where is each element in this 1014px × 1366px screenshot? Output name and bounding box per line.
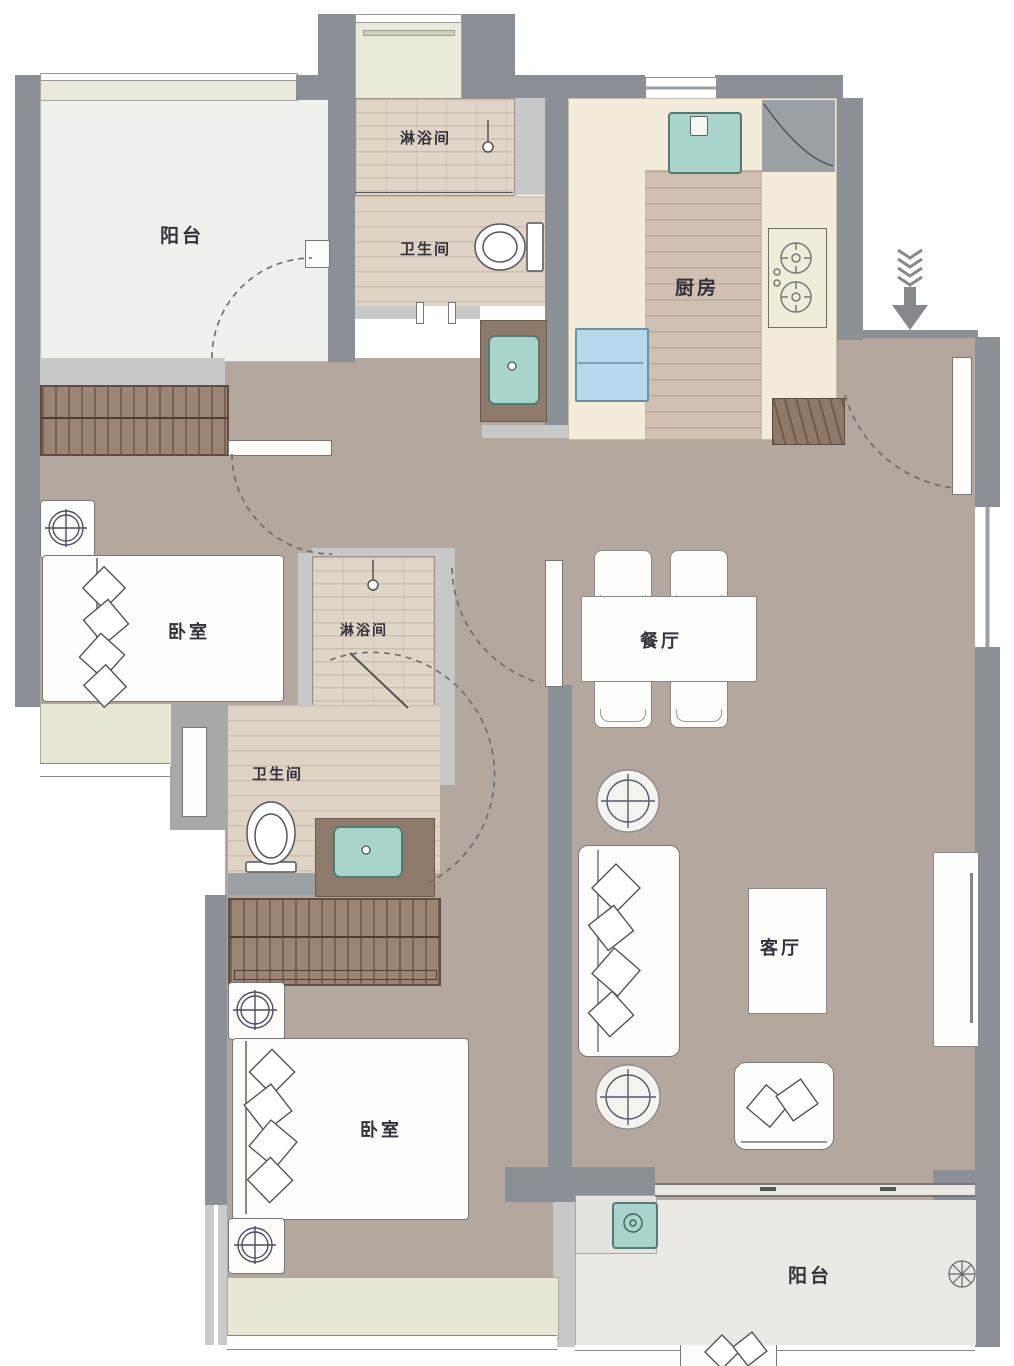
wall-bath-mid-bottom (228, 870, 315, 895)
wall-entry-top (835, 330, 978, 338)
duct-shower-north (513, 98, 545, 195)
washing-machine (612, 1202, 658, 1249)
floor-plan: 阳台 淋浴间 卫生间 厨房 卧室 淋浴间 卫生间 餐厅 客厅 卧室 阳台 (0, 0, 1014, 1366)
window-bedroom-south-left (205, 1205, 227, 1345)
tv-panel (970, 873, 973, 1023)
bed-south (232, 1038, 469, 1220)
label-bedroom-south: 卧室 (360, 1116, 402, 1142)
label-balcony-south: 阳台 (788, 1261, 832, 1288)
corridor-door-leaf (545, 560, 563, 687)
label-bath-mid: 卫生间 (252, 763, 303, 784)
kitchen-fridge (575, 328, 649, 402)
balcony-north-window-sill (40, 78, 298, 101)
nightstand-south-a (228, 982, 285, 1040)
bath-north-door-jamb-right (448, 302, 456, 324)
sliding-door-track (655, 1183, 975, 1197)
shower-north-curtain-rail (363, 30, 455, 36)
niche-door-panel (182, 727, 207, 817)
wall-right-outer (975, 337, 1000, 1347)
wall-kitchen-top-right (715, 75, 843, 100)
sliding-door-handle-2 (880, 1187, 896, 1191)
wardrobe-south-rail (230, 936, 439, 938)
wardrobe-north (40, 385, 229, 456)
window-right-dining (975, 505, 1000, 649)
bedroom-west-door-leaf (228, 440, 332, 456)
wardrobe-south (228, 898, 441, 986)
bay-window-bedroom-south (227, 1277, 559, 1339)
wardrobe-south-shelf (234, 970, 437, 980)
wall-kitchen-right (835, 98, 863, 340)
label-shower-north: 淋浴间 (400, 127, 451, 148)
label-balcony-north: 阳台 (160, 221, 204, 248)
nightstand-west (40, 500, 95, 559)
label-shower-mid: 淋浴间 (340, 620, 388, 640)
nightstand-south-b (228, 1218, 285, 1274)
wardrobe-north-rail (42, 417, 227, 419)
wall-balcony-right (328, 98, 355, 362)
shower-north-window-frame (355, 14, 462, 23)
wall-bath-north-bottom-left (355, 306, 420, 319)
wall-top-a (296, 75, 328, 100)
armchair (734, 1062, 834, 1150)
wall-left-outer (15, 75, 40, 707)
wall-top-b (515, 75, 568, 100)
label-bath-north: 卫生间 (400, 238, 451, 259)
wall-bedroom-south-left (205, 895, 227, 1205)
kitchen-faucet (690, 116, 708, 136)
kitchen-flue-duct (762, 100, 835, 172)
kitchen-stove-base (768, 228, 827, 328)
wall-tower-right (460, 14, 515, 100)
bed-south-headboard (245, 1041, 247, 1214)
sofa-back-line (597, 850, 599, 1052)
bay-window-bedroom-south-frame (227, 1335, 557, 1350)
wall-kitchen-top-left (565, 75, 645, 100)
balcony-north-window-frame (40, 73, 298, 81)
label-bedroom-west: 卧室 (168, 618, 210, 644)
tv-cabinet (933, 852, 979, 1047)
bed-west (42, 555, 284, 702)
bath-north-door-jamb-left (416, 302, 424, 324)
bath-mid-sink (333, 826, 403, 878)
sofa (578, 845, 680, 1057)
kitchen-floor (645, 170, 762, 440)
entry-shoe-cabinet (772, 398, 845, 445)
wall-hall-bedroom-south (548, 685, 572, 1167)
sliding-door-handle-1 (760, 1187, 776, 1191)
label-dining: 餐厅 (640, 627, 682, 653)
label-kitchen: 厨房 (675, 273, 719, 300)
bay-window-bedroom-west-frame (40, 763, 170, 777)
wall-below-balcony (40, 358, 225, 385)
wall-bedroom-west-right (298, 553, 312, 706)
bay-window-bedroom-west (40, 703, 172, 767)
armchair-seat-line (741, 1141, 827, 1143)
entry-arrow-icon (892, 250, 928, 330)
balcony-north-door-leaf (305, 240, 330, 268)
kitchen-window (645, 77, 717, 100)
entry-door-leaf (952, 357, 972, 495)
hall-sink (488, 335, 540, 405)
label-living: 客厅 (760, 934, 802, 960)
bed-west-headboard (96, 558, 98, 697)
